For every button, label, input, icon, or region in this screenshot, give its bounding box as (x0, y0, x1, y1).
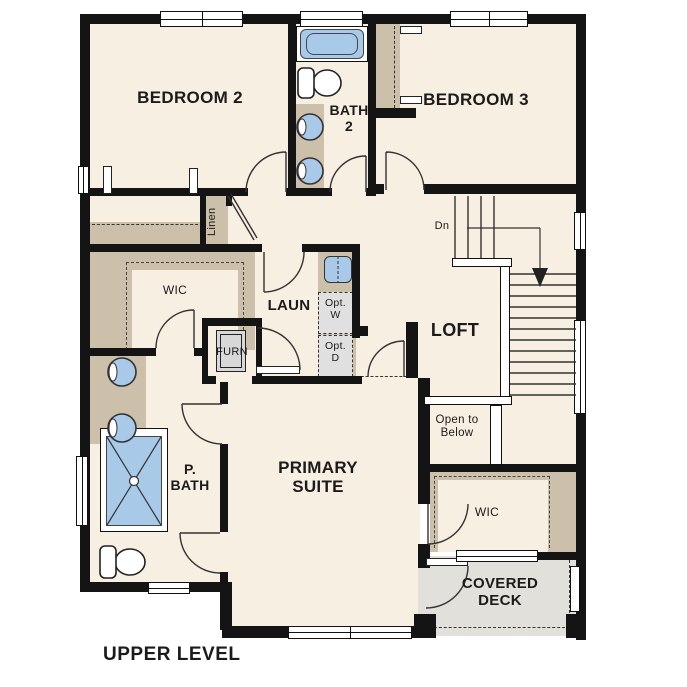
suite-entry-dashed-line (356, 376, 412, 377)
bedroom2-closet-rod-line (92, 224, 203, 225)
opt-washer-label: Opt.W (318, 298, 353, 322)
wall-suite-west (220, 582, 232, 630)
window-toilet-room-bottom (148, 582, 190, 594)
shower-pan (106, 436, 162, 526)
open-to-below-label: Open toBelow (426, 414, 488, 440)
wall-laundry-bottom-b (252, 376, 362, 384)
opt-dryer-label: Opt.D (318, 341, 353, 365)
wall-hall-a (288, 188, 332, 196)
bathtub-inner-line (306, 33, 358, 55)
floor-primary-suite (228, 380, 420, 628)
primary-suite-label: PRIMARYSUITE (238, 458, 398, 496)
bedroom2-label: BEDROOM 2 (110, 88, 270, 107)
wall-wic-left-bottom-a (82, 348, 156, 356)
furnace-door-leaf (256, 366, 300, 374)
wall-furnace-top (202, 318, 262, 326)
wall-mid-b (302, 244, 360, 252)
plan-title: UPPER LEVEL (103, 644, 303, 665)
open-below-railing (490, 405, 502, 465)
covered-deck-label: COVEREDDECK (448, 576, 552, 610)
wall-bedroom2-closet-b (206, 188, 248, 196)
window-stair-right-lower (574, 320, 586, 414)
bedroom3-shelf-mark-top (400, 26, 422, 34)
window-bedroom3-top (450, 11, 528, 27)
laundry-label: LAUN (260, 298, 318, 315)
window-shower-left (76, 456, 88, 526)
wic-left-label: WIC (150, 284, 200, 297)
bedroom2-closet-jamb-right (189, 168, 198, 194)
window-bath2-top (300, 11, 363, 27)
window-primary-suite-bottom (288, 626, 412, 639)
deck-post-bottom-left (414, 614, 436, 638)
deck-column-band (570, 566, 580, 612)
bedroom3-closet-rod-line (394, 26, 395, 108)
wall-pbath-east-c (220, 572, 228, 586)
wic-right-label: WIC (462, 506, 512, 519)
wall-laundry-stub (352, 326, 368, 336)
deck-post-bottom-right (566, 614, 586, 638)
bedroom3-label: BEDROOM 3 (396, 90, 556, 109)
stair-railing-side (500, 266, 510, 398)
window-bedroom2-top (160, 11, 243, 27)
bath2-label: BATH2 (322, 103, 376, 134)
dn-label: Dn (428, 220, 456, 232)
wall-bedroom3-closet-bottom (374, 108, 416, 118)
wall-bedroom2-east (288, 24, 296, 196)
laundry-sink-icon (324, 256, 352, 283)
window-bedroom2-left (78, 166, 89, 194)
wall-wic-left-bottom-b (194, 348, 206, 356)
wall-pbath-east-a (220, 382, 228, 404)
wall-pbath-east-b (220, 444, 228, 532)
wall-open-below-bottom (424, 464, 576, 472)
window-stair-right-upper (574, 212, 586, 250)
bedroom2-closet-jamb-left (103, 166, 112, 194)
wall-mid-a (82, 244, 262, 252)
pbath-label: P.BATH (160, 462, 220, 493)
window-wic-right-bottom (456, 550, 538, 562)
linen-label: Linen (206, 199, 228, 245)
wall-bedroom3-bottom (424, 184, 576, 194)
bath2-vanity (296, 104, 324, 194)
floor-plan: BEDROOM 2 BATH2 BEDROOM 3 Linen Dn LOFT … (0, 0, 687, 687)
furnace-label: FURN (206, 346, 258, 358)
loft-railing-bottom (424, 396, 512, 405)
loft-label: LOFT (415, 320, 495, 340)
wall-bedroom3-bottom-west (374, 184, 384, 194)
